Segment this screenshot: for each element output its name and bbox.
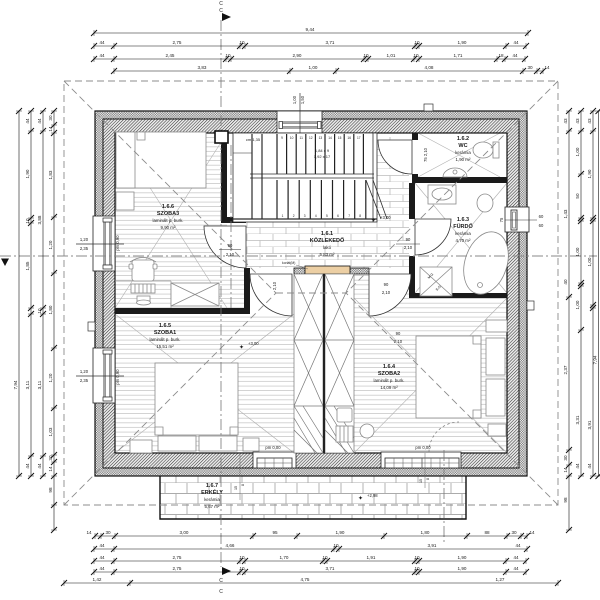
svg-text:kerámia: kerámia [455,231,471,236]
svg-text:10: 10 [322,555,328,560]
svg-text:2,10: 2,10 [404,245,413,250]
svg-text:30: 30 [105,530,111,535]
svg-text:1,20: 1,20 [80,369,89,374]
svg-text:5: 5 [326,214,328,218]
svg-text:60: 60 [539,223,544,228]
svg-text:1,71: 1,71 [454,53,463,58]
svg-text:44: 44 [575,463,580,469]
svg-text:6: 6 [337,214,339,218]
svg-text:12: 12 [309,136,313,140]
svg-text:1: 1 [282,214,284,218]
svg-text:1,90: 1,90 [336,530,345,535]
svg-text:10: 10 [414,40,420,45]
svg-text:1,90: 1,90 [587,169,592,178]
svg-text:3,88: 3,88 [37,215,42,224]
svg-text:WC: WC [458,143,467,149]
svg-text:9,90 m²: 9,90 m² [161,225,176,230]
svg-text:9: 9 [281,136,283,140]
svg-text:14,09 m²: 14,09 m² [380,385,398,390]
svg-text:1,00: 1,00 [575,300,580,309]
svg-text:1,84 x 9: 1,84 x 9 [315,148,330,153]
svg-text:+2,98: +2,98 [367,493,378,498]
svg-text:50: 50 [575,193,580,199]
svg-text:60: 60 [539,214,544,219]
svg-text:2: 2 [293,214,295,218]
svg-text:1,20: 1,20 [48,240,53,249]
svg-text:✦: ✦ [371,217,376,224]
svg-text:11: 11 [300,136,304,140]
svg-text:30: 30 [563,455,568,461]
svg-text:10: 10 [333,543,339,548]
svg-text:3,31: 3,31 [575,415,580,424]
svg-text:+3,00: +3,00 [380,215,391,220]
svg-text:75: 75 [499,217,504,222]
svg-text:4,08: 4,08 [425,65,434,70]
svg-text:laminált p. burk.: laminált p. burk. [374,378,405,383]
svg-text:1.6.7: 1.6.7 [206,483,218,489]
svg-text:korlát(M): korlát(M) [282,261,295,265]
svg-text:7: 7 [348,214,350,218]
svg-text:10: 10 [413,53,419,58]
svg-text:43: 43 [587,118,592,124]
svg-text:1,90: 1,90 [25,169,30,178]
svg-text:1,83: 1,83 [48,170,53,179]
svg-text:kerámia: kerámia [455,150,471,155]
svg-text:1,20: 1,20 [80,237,89,242]
svg-text:7,94: 7,94 [13,380,18,389]
svg-text:10: 10 [239,555,245,560]
svg-text:1,00: 1,00 [575,147,580,156]
svg-text:1.6.4: 1.6.4 [383,364,396,370]
svg-text:cm 1,35: cm 1,35 [246,137,261,142]
svg-text:2,90: 2,90 [293,53,302,58]
svg-text:10: 10 [414,555,420,560]
svg-text:3,00: 3,00 [180,530,189,535]
svg-text:C: C [219,8,223,14]
svg-text:10: 10 [225,53,231,58]
svg-text:9,44: 9,44 [306,27,315,32]
svg-text:1,90: 1,90 [458,555,467,560]
svg-text:1.6.1: 1.6.1 [321,231,333,237]
svg-text:3,91: 3,91 [587,420,592,429]
svg-text:3,71: 3,71 [326,40,335,45]
svg-text:44: 44 [25,463,30,469]
svg-text:8: 8 [426,478,430,480]
svg-text:13: 13 [319,136,323,140]
svg-text:30: 30 [48,115,53,121]
svg-text:pm 0,90: pm 0,90 [115,235,120,251]
svg-text:FÜRDŐ: FÜRDŐ [453,223,473,230]
svg-text:15: 15 [234,486,238,490]
svg-text:1,00: 1,00 [587,257,592,266]
svg-text:SZOBA3: SZOBA3 [157,211,179,217]
svg-text:3: 3 [304,214,306,218]
svg-text:2,10: 2,10 [382,290,391,295]
svg-text:2,35: 2,35 [80,378,89,383]
svg-text:10: 10 [37,308,42,314]
svg-text:2,75: 2,75 [173,40,182,45]
svg-text:1.6.6: 1.6.6 [162,204,174,210]
svg-text:5,67 m²: 5,67 m² [205,504,220,509]
svg-text:2,10: 2,10 [226,252,235,257]
svg-text:15: 15 [338,136,342,140]
svg-text:1,90: 1,90 [458,40,467,45]
svg-text:1,85: 1,85 [25,261,30,270]
svg-text:3,11: 3,11 [37,380,42,389]
svg-text:1,90: 1,90 [458,566,467,571]
svg-text:2,75: 2,75 [173,566,182,571]
svg-text:44: 44 [99,555,105,560]
svg-text:98: 98 [563,497,568,503]
svg-text:95: 95 [272,530,278,535]
svg-text:2,45: 2,45 [166,53,175,58]
svg-text:10: 10 [239,566,245,571]
svg-text:1,20: 1,20 [48,373,53,382]
svg-text:kerámia: kerámia [204,497,220,502]
svg-text:1,80: 1,80 [48,305,53,314]
svg-text:30: 30 [48,455,53,461]
svg-text:3,71: 3,71 [326,566,335,571]
svg-text:15,51 m²: 15,51 m² [156,344,174,349]
svg-text:pm 0,00: pm 0,00 [265,445,281,450]
svg-text:5,83 m²: 5,83 m² [320,252,335,257]
svg-text:1,80: 1,80 [421,530,430,535]
svg-text:14: 14 [48,466,53,472]
svg-text:8: 8 [241,484,245,486]
svg-text:pm 0,90: pm 0,90 [115,369,120,385]
svg-text:14: 14 [86,530,92,535]
svg-text:1,00: 1,00 [309,65,318,70]
svg-text:C: C [219,1,223,7]
svg-text:1,90 m²: 1,90 m² [456,157,471,162]
svg-text:1,03: 1,03 [48,427,53,436]
svg-text:44: 44 [587,463,592,469]
svg-text:2,35: 2,35 [80,246,89,251]
svg-text:2,10: 2,10 [272,281,277,290]
svg-text:1,70: 1,70 [280,555,289,560]
svg-text:1,00: 1,00 [292,95,297,104]
svg-text:10: 10 [290,136,294,140]
svg-text:44: 44 [99,566,105,571]
svg-text:14: 14 [544,65,550,70]
svg-text:10: 10 [239,40,245,45]
svg-text:+3,00: +3,00 [248,341,259,346]
svg-text:1,92 x 17: 1,92 x 17 [314,154,331,159]
svg-text:43: 43 [575,118,580,124]
svg-text:14: 14 [328,136,332,140]
svg-text:44: 44 [99,40,105,45]
svg-text:C: C [219,589,223,595]
svg-text:14: 14 [529,530,535,535]
svg-text:98: 98 [48,487,53,493]
svg-text:3,91: 3,91 [428,543,437,548]
svg-text:15: 15 [419,479,423,483]
svg-text:pm 0,00: pm 0,00 [415,445,431,450]
svg-text:30: 30 [511,530,517,535]
svg-text:90: 90 [384,282,389,287]
svg-text:90: 90 [396,331,401,336]
svg-text:44: 44 [37,118,42,124]
svg-text:44: 44 [99,543,105,548]
svg-text:88: 88 [484,530,490,535]
svg-text:43: 43 [563,118,568,124]
svg-text:44: 44 [99,53,105,58]
svg-text:1.6.3: 1.6.3 [457,217,469,223]
svg-text:30: 30 [527,65,533,70]
svg-text:1.6.2: 1.6.2 [457,136,469,142]
svg-text:lakó: lakó [323,245,332,250]
svg-text:1,91: 1,91 [367,555,376,560]
svg-text:KÖZLEKEDŐ: KÖZLEKEDŐ [310,237,345,244]
svg-text:✦: ✦ [239,344,244,351]
svg-text:1,42: 1,42 [93,577,102,582]
svg-text:10: 10 [25,218,30,224]
svg-text:90: 90 [406,237,411,242]
svg-text:44: 44 [37,463,42,469]
svg-text:40: 40 [563,279,568,285]
svg-text:1,43: 1,43 [563,209,568,218]
svg-text:44: 44 [25,118,30,124]
svg-text:90: 90 [228,243,233,248]
svg-text:4: 4 [315,214,317,218]
svg-text:✦: ✦ [358,495,363,502]
svg-text:1.6.5: 1.6.5 [159,323,171,329]
svg-text:16: 16 [347,136,351,140]
svg-text:3,83: 3,83 [198,65,207,70]
svg-text:44: 44 [515,543,521,548]
svg-text:SZOBA2: SZOBA2 [378,371,400,377]
svg-text:1,01: 1,01 [387,53,396,58]
svg-text:75 2,10: 75 2,10 [423,147,428,162]
svg-text:laminált p. burk.: laminált p. burk. [150,337,181,342]
svg-text:2,37: 2,37 [563,365,568,374]
svg-text:8: 8 [359,214,361,218]
svg-text:10: 10 [363,53,369,58]
svg-text:4,70 m²: 4,70 m² [456,238,471,243]
svg-text:17: 17 [357,136,361,140]
svg-text:4,75: 4,75 [301,577,310,582]
svg-text:44: 44 [513,566,519,571]
svg-text:ERKÉLY: ERKÉLY [201,488,223,496]
svg-text:1,00: 1,00 [575,247,580,256]
svg-text:7,94: 7,94 [593,355,598,364]
svg-text:4,66: 4,66 [226,543,235,548]
svg-text:3,11: 3,11 [25,380,30,389]
svg-text:18: 18 [498,53,504,58]
svg-text:SZOBA1: SZOBA1 [154,330,176,336]
svg-text:2,75: 2,75 [173,555,182,560]
svg-text:1,27: 1,27 [496,577,505,582]
svg-text:44: 44 [512,53,518,58]
svg-text:14: 14 [563,467,568,473]
svg-text:44: 44 [513,40,519,45]
svg-text:1,50: 1,50 [300,95,305,104]
svg-text:14: 14 [48,126,53,132]
svg-text:10: 10 [414,566,420,571]
svg-text:laminált p. burk.: laminált p. burk. [153,218,184,223]
svg-text:2,10: 2,10 [394,339,403,344]
svg-text:44: 44 [513,555,519,560]
